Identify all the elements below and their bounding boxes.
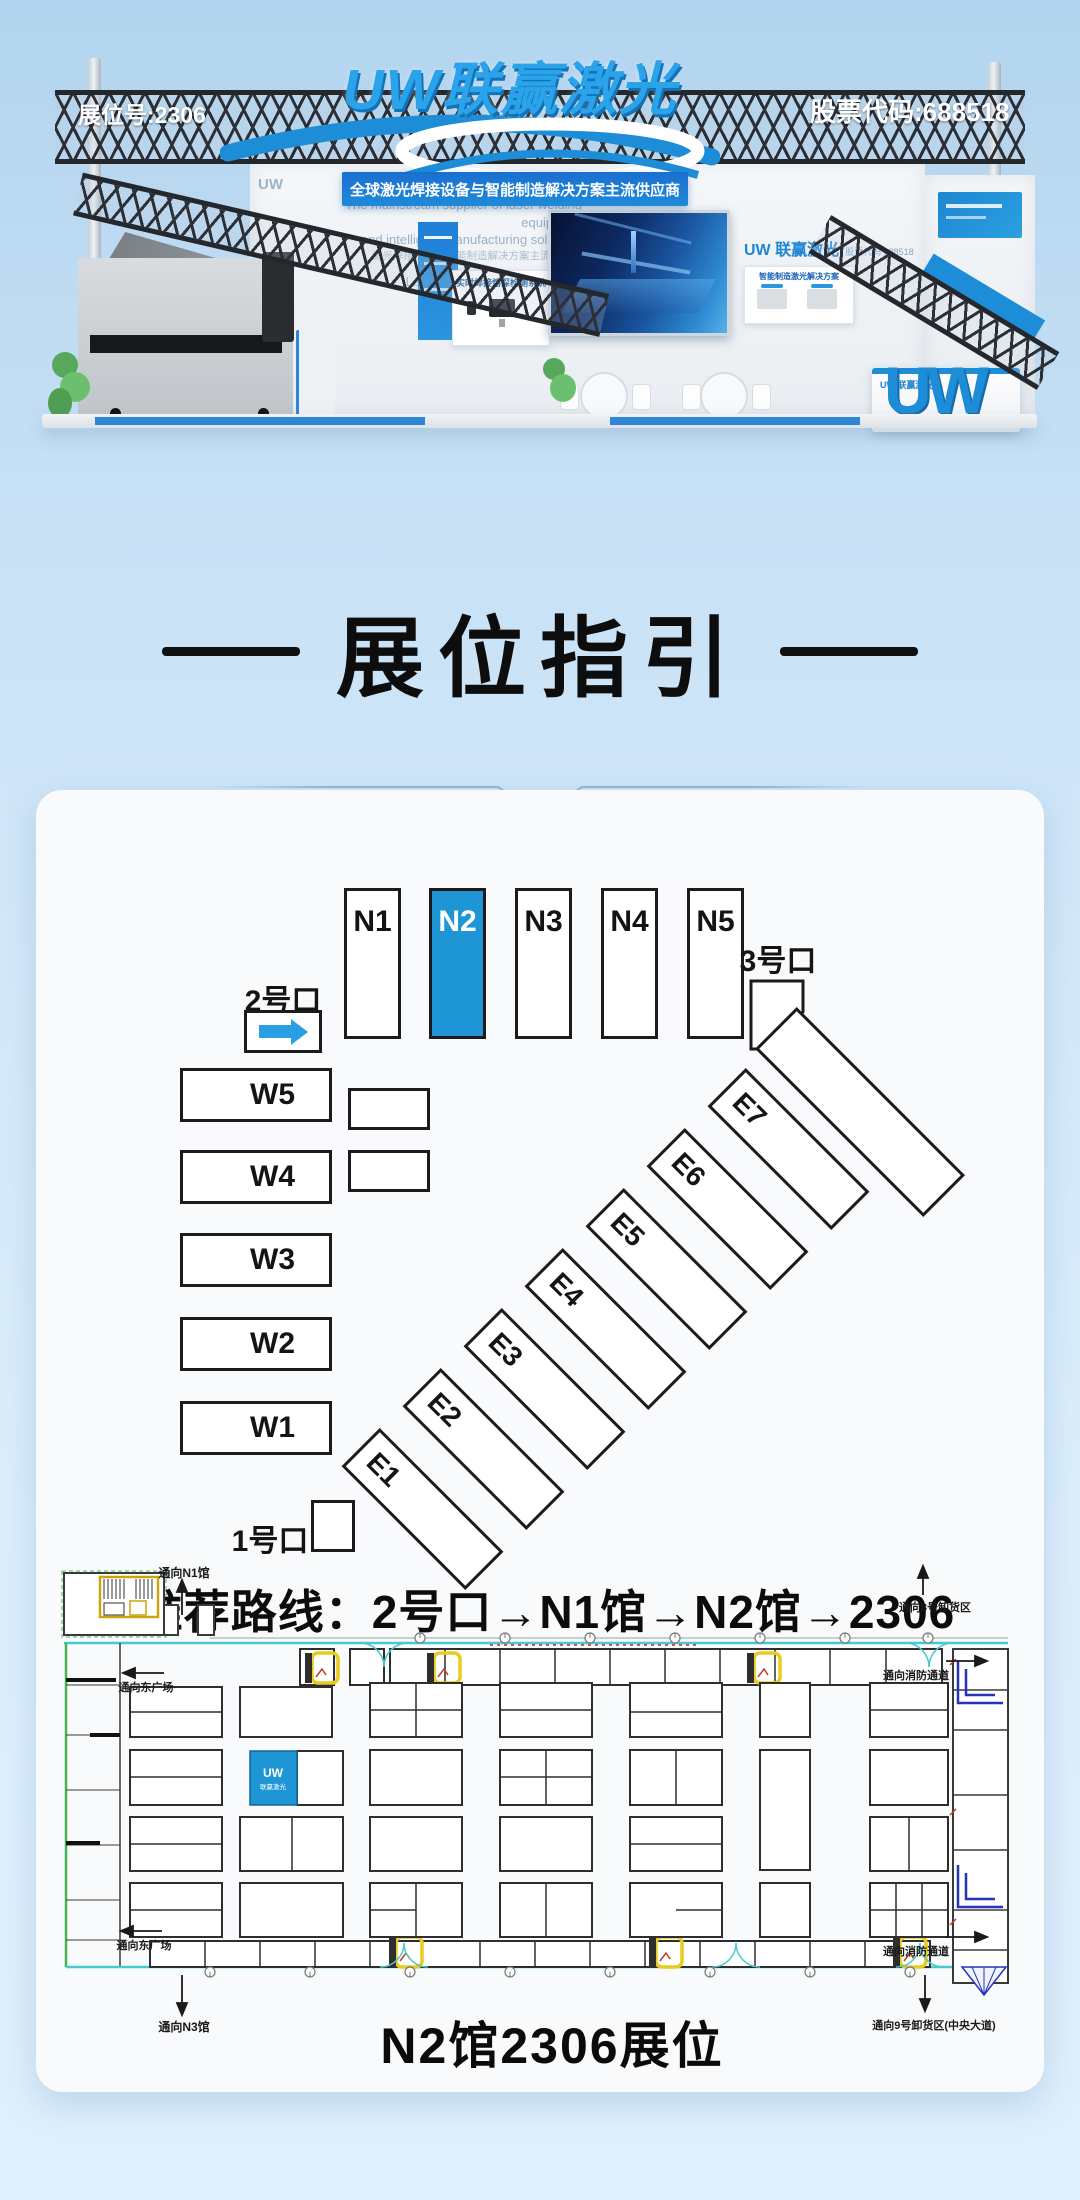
floorplan-booth (370, 1750, 462, 1805)
hall-w5: W5 (180, 1068, 332, 1122)
floorplan-booth (760, 1750, 810, 1870)
hall-w2: W2 (180, 1317, 332, 1371)
hall-e4-label: E4 (543, 1266, 590, 1313)
dir-plaza-top-label: 通向东广场 (119, 1680, 174, 1694)
floorplan-booth (630, 1683, 722, 1737)
floorplan-booth (240, 1687, 332, 1737)
dir-unload8-label: 通向8号卸货区 (899, 1600, 971, 1614)
hall-w3: W3 (180, 1233, 332, 1287)
gate2-arrow-head-icon (291, 1019, 308, 1045)
hall-e7-label: E7 (726, 1086, 773, 1133)
title-dash-right (780, 647, 918, 656)
hall-e1-label: E1 (360, 1446, 407, 1493)
booth-grid (130, 1683, 948, 1937)
machine-stand (296, 330, 335, 418)
gate2-entrance (244, 1010, 322, 1053)
hall-e2-label: E2 (421, 1386, 468, 1433)
page-title: 展位指引 (336, 588, 744, 715)
dir-fire-top-label: 通向消防通道 (883, 1668, 949, 1682)
hall-n4: N4 (601, 888, 658, 1039)
small-hall-b (348, 1150, 430, 1192)
machine-stripe (90, 335, 282, 353)
hall-n4-label: N4 (610, 905, 648, 1036)
hall-w4: W4 (180, 1150, 332, 1204)
title-dash-left (162, 647, 300, 656)
floorplan-booth (870, 1750, 948, 1805)
hall-w1: W1 (180, 1401, 332, 1455)
round-table (700, 372, 748, 420)
slogan-banner: 全球激光焊接设备与智能制造解决方案主流供应商 (342, 172, 688, 206)
gate2-arrow-icon (259, 1025, 291, 1038)
hall-e3-label: E3 (482, 1326, 529, 1373)
plan-bottom-strip (150, 1941, 930, 1967)
hall-n2-label: N2 (438, 905, 476, 1036)
plan-top-strip (390, 1649, 942, 1685)
plan-right-rooms (953, 1649, 1008, 1983)
hall-e6-label: E6 (665, 1146, 712, 1193)
hall-n2-highlighted: N2 (429, 888, 486, 1039)
hall-w3-label: W3 (250, 1243, 295, 1277)
page: UW The mainstream supplier of laser weld… (0, 0, 1080, 2200)
hall-n3-label: N3 (524, 905, 562, 1036)
slogan-text: 全球激光焊接设备与智能制造解决方案主流供应商 (350, 179, 680, 200)
small-hall-a (348, 1088, 430, 1130)
floorplan-booth (760, 1883, 810, 1937)
gate1-label: 1号口 (222, 1516, 318, 1560)
hero-booth-render: UW The mainstream supplier of laser weld… (0, 0, 1080, 470)
hall-w4-label: W4 (250, 1160, 295, 1194)
guide-card: N1 N2 N3 N4 N5 3号口 2号口 W5 W4 W3 W2 W1 E1… (36, 790, 1044, 2092)
dir-fire-bottom-label: 通向消防通道 (883, 1944, 949, 1958)
hall-n3: N3 (515, 888, 572, 1039)
floorplan-booth (500, 1817, 592, 1871)
floorplan-booth (240, 1883, 343, 1937)
hero-logo: UW联赢激光 (280, 44, 740, 126)
hall-w2-label: W2 (250, 1327, 295, 1361)
hall-n1: N1 (344, 888, 401, 1039)
floorplan-booth (760, 1683, 810, 1737)
product-poster: 智能制造激光解决方案 (744, 266, 854, 324)
uw-booth-logo-sub: 联赢激光 (260, 1782, 287, 1791)
booth-no-label: 展位号:2306 (78, 96, 206, 130)
floorplan-booth (370, 1817, 462, 1871)
floorplan-svg: UW 联赢激光 通向N1馆 通向8号卸货区 通向东广场 通向消防通道 通向东广场… (60, 1565, 1010, 2035)
section-title-row: 展位指引 (0, 588, 1080, 715)
gate1-entrance (311, 1500, 355, 1552)
dir-n1-label: 通向N1馆 (158, 1565, 209, 1580)
stock-code-label: 股票代码:688518 (810, 92, 1009, 129)
far-wall-poster (938, 192, 1022, 238)
uw-booth-highlight: UW 联赢激光 (250, 1751, 297, 1805)
floorplan-booth (297, 1751, 343, 1805)
hall-w5-label: W5 (250, 1078, 295, 1112)
hall-w1-label: W1 (250, 1411, 295, 1445)
plan-caption: N2馆2306展位 (60, 2006, 1044, 2078)
dir-plaza-bottom-label: 通向东广场 (117, 1938, 172, 1952)
round-table (580, 372, 628, 420)
hall-n1-label: N1 (353, 905, 391, 1036)
uw-booth-logo: UW (263, 1766, 284, 1780)
hall-e5-label: E5 (604, 1206, 651, 1253)
